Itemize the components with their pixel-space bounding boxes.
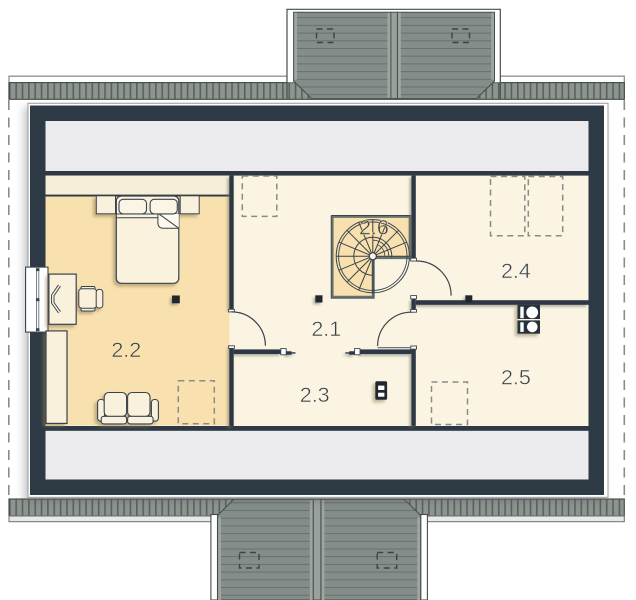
svg-text:2.1: 2.1 [311,317,341,341]
svg-text:2.5: 2.5 [501,366,531,390]
svg-text:2.6: 2.6 [359,216,389,240]
svg-text:2.3: 2.3 [300,383,330,407]
svg-text:2.2: 2.2 [111,338,141,362]
svg-text:2.4: 2.4 [501,259,531,283]
